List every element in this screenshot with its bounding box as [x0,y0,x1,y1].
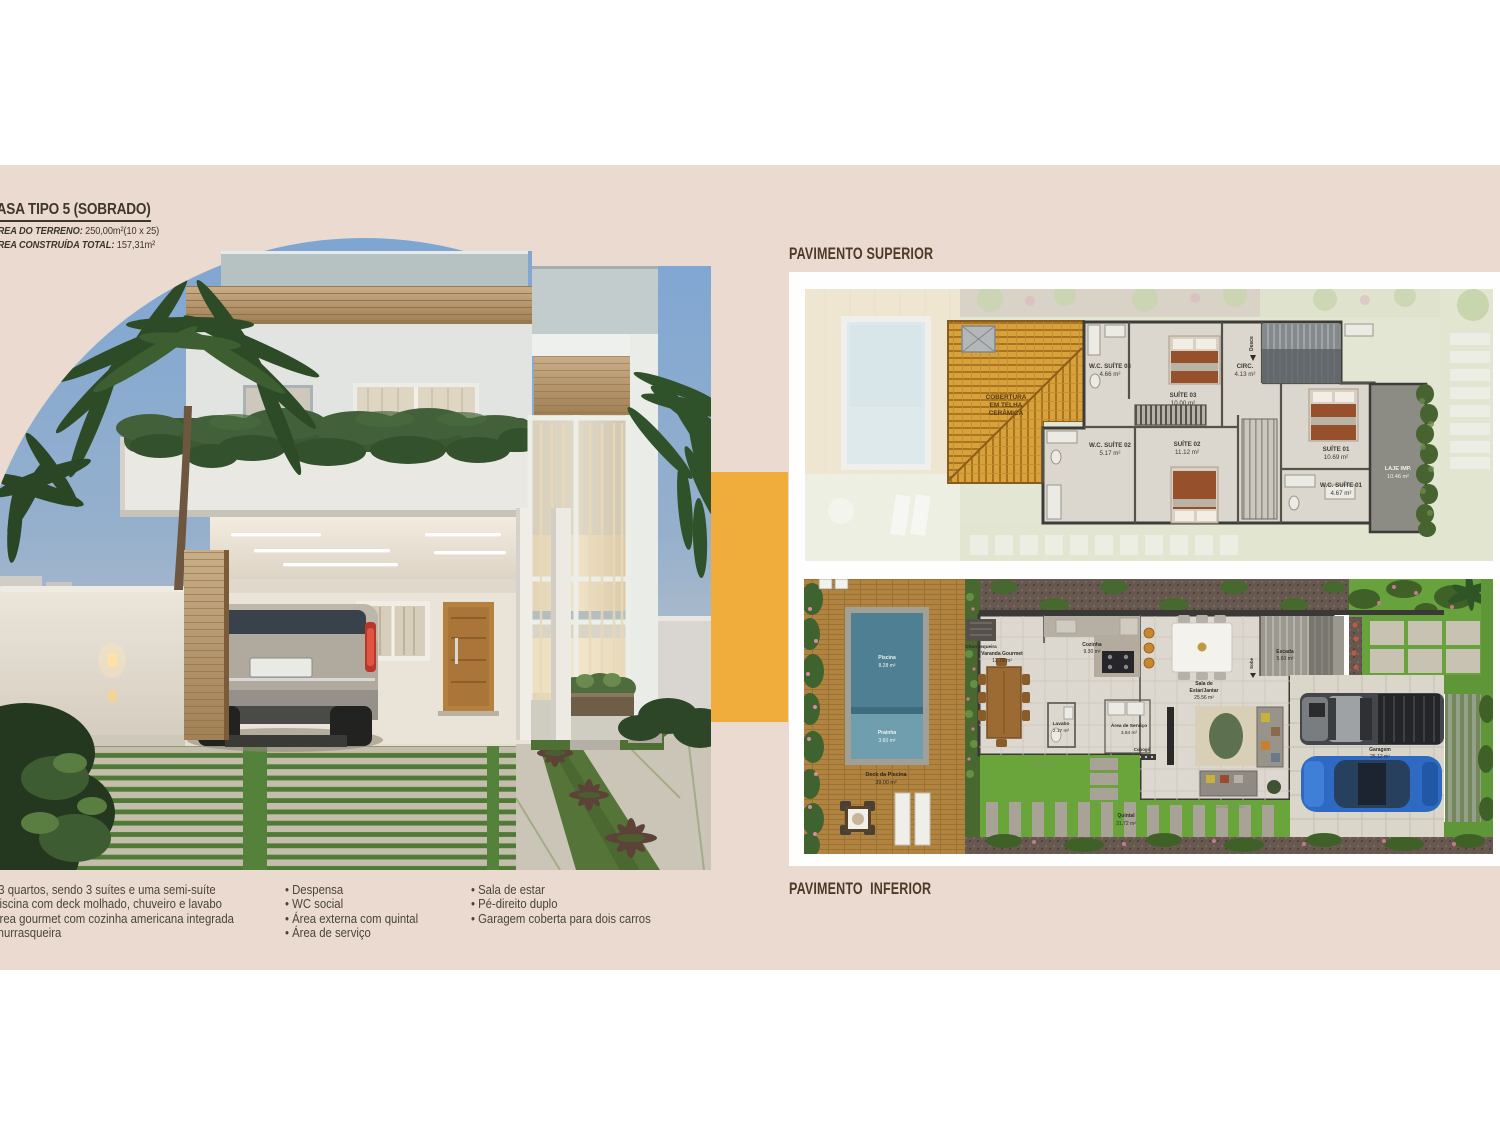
svg-text:Escada: Escada [1276,649,1294,655]
svg-text:SUÍTE 02: SUÍTE 02 [1174,440,1201,448]
svg-text:SUÍTE 01: SUÍTE 01 [1323,445,1350,453]
svg-text:25.56 m²: 25.56 m² [1194,695,1214,701]
svg-text:W.C. SUÍTE 02: W.C. SUÍTE 02 [1089,441,1132,449]
svg-text:Cozinha: Cozinha [1082,642,1102,648]
svg-text:5.17 m²: 5.17 m² [1100,450,1121,457]
svg-text:12,79 m²: 12,79 m² [992,658,1012,664]
svg-text:SUÍTE 03: SUÍTE 03 [1170,391,1197,399]
svg-text:Churrasqueira: Churrasqueira [965,644,997,649]
svg-text:W.C. SUÍTE 03: W.C. SUÍTE 03 [1089,362,1132,370]
svg-text:4.13 m²: 4.13 m² [1235,371,1256,378]
svg-text:Proj. Pav. Superior: Proj. Pav. Superior [1089,770,1120,774]
svg-text:Sala de: Sala de [1195,681,1213,687]
svg-text:2.17 m²: 2.17 m² [1053,728,1070,734]
svg-text:Piscina: Piscina [878,655,896,661]
svg-text:LAJE IMP.: LAJE IMP. [1385,466,1412,472]
svg-text:39,00 m²: 39,00 m² [875,780,896,786]
svg-text:CIRC.: CIRC. [1237,363,1254,370]
svg-text:10.69 m²: 10.69 m² [1324,454,1348,461]
svg-text:EM TELHA: EM TELHA [990,402,1023,409]
svg-text:31,72 m²: 31,72 m² [1116,821,1136,827]
svg-text:8.28 m²: 8.28 m² [879,663,896,669]
svg-text:Deck da Piscina: Deck da Piscina [865,772,907,778]
svg-text:4.66 m²: 4.66 m² [1100,371,1121,378]
svg-text:CERÂMICA: CERÂMICA [989,408,1024,417]
svg-text:11.12 m²: 11.12 m² [1175,449,1199,456]
svg-text:Quintal: Quintal [1117,813,1135,819]
svg-text:Varanda Gourmet: Varanda Gourmet [981,651,1023,657]
svg-text:W.C. SUÍTE 01: W.C. SUÍTE 01 [1320,481,1363,489]
svg-text:25.12 m²: 25.12 m² [1370,754,1390,760]
svg-text:Proj. Beiral: Proj. Beiral [1034,763,1052,767]
svg-text:Cobogó: Cobogó [1134,747,1151,752]
svg-text:3.60 m²: 3.60 m² [879,738,896,744]
svg-text:Desce: Desce [1249,336,1255,351]
svg-text:Prainha: Prainha [878,730,897,736]
svg-text:10.00 m²: 10.00 m² [1171,400,1195,407]
svg-text:3.84 m²: 3.84 m² [1121,730,1138,736]
svg-text:Área de Serviço: Área de Serviço [1111,722,1147,729]
svg-text:Lavabo: Lavabo [1053,721,1070,727]
svg-text:Proj. Pav. Superior: Proj. Pav. Superior [1214,805,1245,809]
svg-text:COBERTURA: COBERTURA [986,394,1027,401]
svg-text:5.60 m²: 5.60 m² [1277,656,1294,662]
svg-text:4.67 m²: 4.67 m² [1331,490,1352,497]
svg-text:10.46 m²: 10.46 m² [1387,474,1409,480]
svg-text:Sobe: Sobe [1249,657,1254,669]
svg-text:Estar/Jantar: Estar/Jantar [1190,688,1219,694]
svg-text:Garagem: Garagem [1369,747,1391,753]
svg-text:9.30 m²: 9.30 m² [1084,649,1101,655]
